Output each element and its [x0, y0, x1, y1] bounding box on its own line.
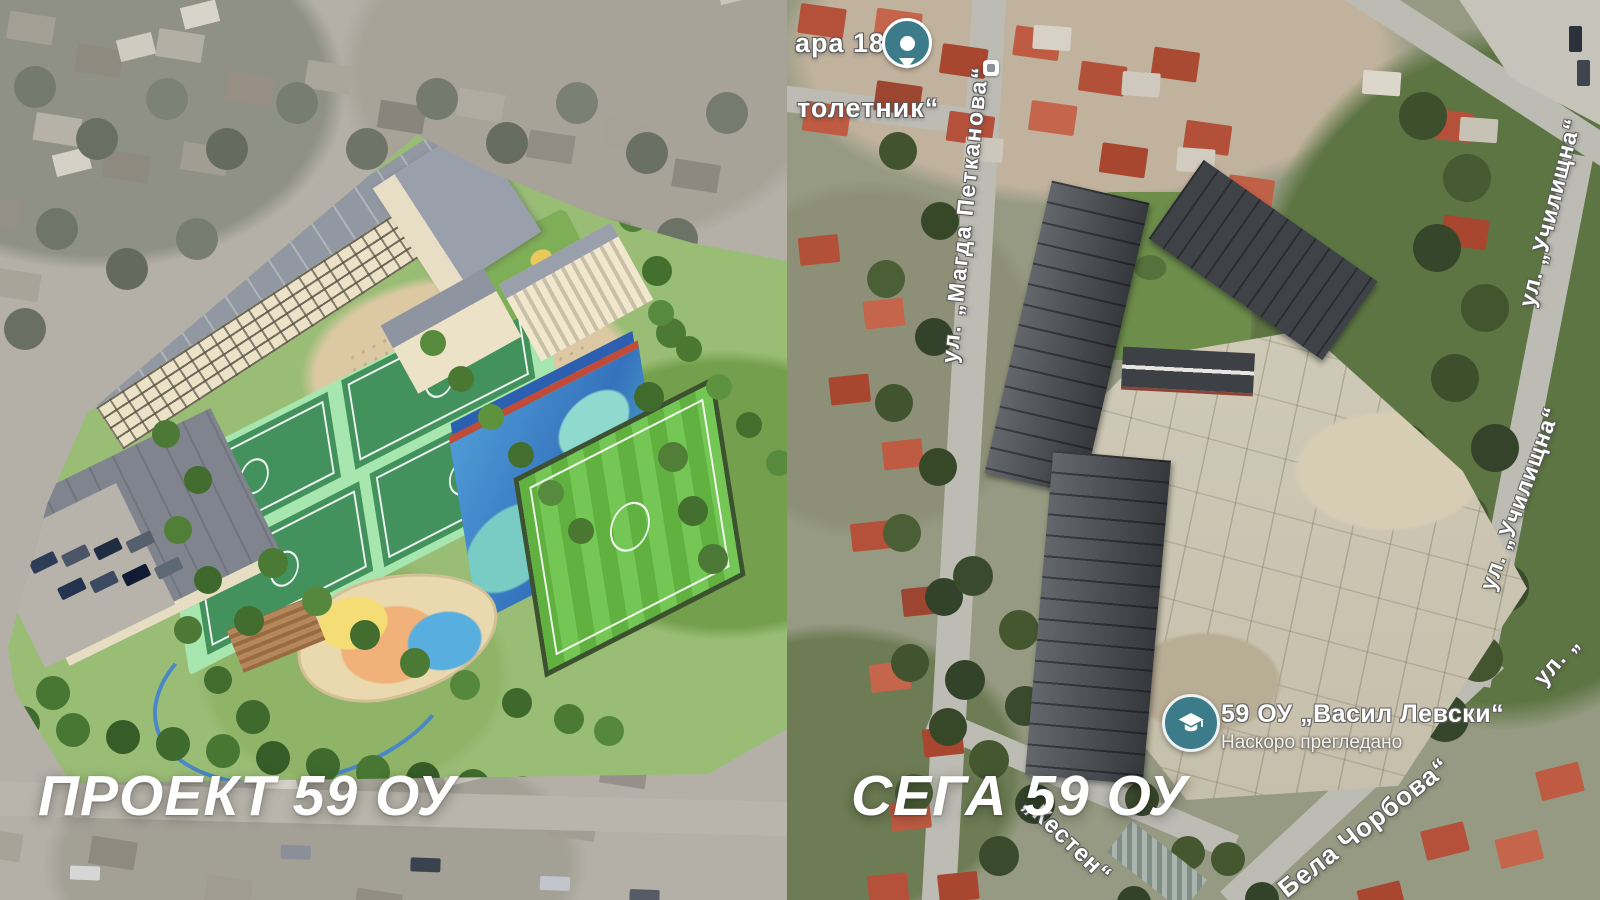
grayscale-houses — [6, 11, 56, 46]
tree-row — [648, 300, 674, 326]
light-roof-houses — [1032, 25, 1072, 52]
tree-cluster — [258, 548, 288, 578]
street-label-stoletnik: толетник“ — [797, 93, 939, 124]
project-render-panel: ПРОЕКТ 59 ОУ — [0, 0, 787, 900]
red-roof-houses-left — [798, 234, 841, 266]
school-poi-marker[interactable] — [1162, 694, 1220, 752]
tree-cluster — [152, 420, 180, 448]
tree-row — [556, 104, 586, 134]
parked-cars — [1569, 26, 1582, 52]
comparison-image: ПРОЕКТ 59 ОУ ара 18 — [0, 0, 1600, 900]
graduation-cap-icon — [1176, 708, 1206, 738]
parked-cars-bottom — [70, 865, 100, 880]
trees-right — [1399, 92, 1447, 140]
trees-left — [879, 132, 917, 170]
grayscale-trees — [14, 66, 56, 108]
trees-bottom-left — [953, 556, 993, 596]
map-pin-icon[interactable] — [882, 18, 932, 68]
satellite-map-panel: ара 18 толетник“ ул. „Магда Петканова“ у… — [787, 0, 1600, 900]
school-poi-status: Наскоро прегледано — [1221, 732, 1402, 754]
school-poi-name[interactable]: 59 ОУ „Васил Левски“ — [1221, 700, 1504, 729]
left-caption: ПРОЕКТ 59 ОУ — [38, 763, 456, 829]
right-caption: СЕГА 59 ОУ — [851, 763, 1188, 829]
tree-hedge — [6, 706, 40, 740]
grayscale-houses-light — [116, 32, 156, 62]
street-label-fragment: ул. „ — [1528, 612, 1600, 691]
pin-label: ара 18 — [795, 28, 885, 59]
tree-row — [420, 330, 446, 356]
school-connector-building — [1121, 347, 1255, 397]
red-roof-houses-bottom — [1420, 821, 1470, 861]
